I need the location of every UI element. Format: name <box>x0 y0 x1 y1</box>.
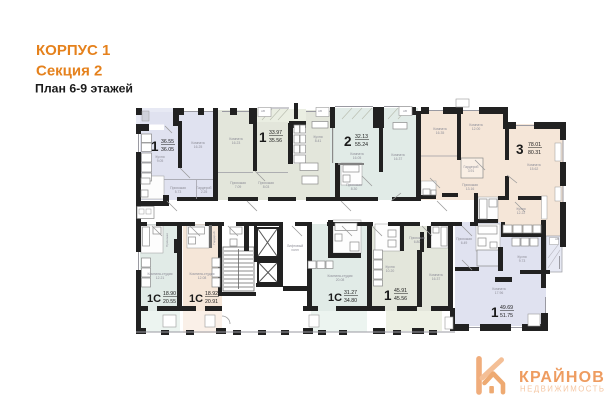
svg-text:КРАЙНОВ: КРАЙНОВ <box>519 367 605 386</box>
svg-text:45.91: 45.91 <box>394 288 407 294</box>
svg-text:78.01: 78.01 <box>528 142 541 148</box>
svg-text:НЕДВИЖИМОСТЬ: НЕДВИЖИМОСТЬ <box>520 385 605 394</box>
svg-text:3: 3 <box>516 142 524 157</box>
svg-text:34.80: 34.80 <box>344 298 357 304</box>
svg-text:36.05: 36.05 <box>161 147 174 153</box>
svg-text:16.23: 16.23 <box>232 141 241 145</box>
svg-text:2.25: 2.25 <box>201 190 208 194</box>
svg-text:16.05: 16.05 <box>353 156 362 160</box>
svg-text:12.00: 12.00 <box>472 127 481 131</box>
svg-text:80.31: 80.31 <box>528 150 541 156</box>
svg-text:Прихожая: Прихожая <box>165 233 169 247</box>
svg-text:33.97: 33.97 <box>269 130 282 136</box>
svg-text:Секция 2: Секция 2 <box>36 63 102 80</box>
svg-text:1С: 1С <box>147 293 161 305</box>
svg-text:20.08: 20.08 <box>336 278 345 282</box>
svg-text:АВ: АВ <box>318 109 322 113</box>
svg-text:9.05: 9.05 <box>157 159 164 163</box>
svg-text:АВ: АВ <box>555 237 559 241</box>
svg-text:1: 1 <box>491 305 499 320</box>
svg-text:12.21: 12.21 <box>156 276 165 280</box>
svg-text:16.35: 16.35 <box>436 131 445 135</box>
svg-text:16.37: 16.37 <box>432 277 441 281</box>
svg-text:36.55: 36.55 <box>161 139 174 145</box>
svg-text:51.75: 51.75 <box>500 313 513 319</box>
svg-text:17.96: 17.96 <box>495 291 504 295</box>
svg-text:Гардероб: Гардероб <box>212 231 216 244</box>
svg-text:1С: 1С <box>189 293 203 305</box>
svg-text:АВ: АВ <box>403 109 407 113</box>
svg-text:6.80: 6.80 <box>414 240 421 244</box>
svg-text:45.56: 45.56 <box>394 296 407 302</box>
svg-text:55.24: 55.24 <box>355 142 368 148</box>
svg-text:8.41: 8.41 <box>315 139 322 143</box>
svg-text:20.55: 20.55 <box>163 299 176 305</box>
svg-text:13.16: 13.16 <box>466 187 475 191</box>
svg-text:5.73: 5.73 <box>175 190 182 194</box>
svg-text:12.08: 12.08 <box>198 276 207 280</box>
svg-text:1: 1 <box>151 139 159 154</box>
svg-text:8.03: 8.03 <box>263 185 270 189</box>
svg-text:16.37: 16.37 <box>394 157 403 161</box>
svg-text:9.73: 9.73 <box>519 259 526 263</box>
svg-text:2: 2 <box>344 134 352 149</box>
svg-text:32.13: 32.13 <box>355 134 368 140</box>
svg-text:20.91: 20.91 <box>205 299 218 305</box>
svg-text:КОРПУС 1: КОРПУС 1 <box>36 42 110 59</box>
svg-text:31.27: 31.27 <box>344 290 357 296</box>
svg-text:6.49: 6.49 <box>461 241 468 245</box>
svg-text:49.69: 49.69 <box>500 305 513 311</box>
svg-text:АВ: АВ <box>261 109 265 113</box>
svg-text:18.90: 18.90 <box>163 291 176 297</box>
svg-text:7.09: 7.09 <box>235 185 242 189</box>
svg-text:10.20: 10.20 <box>386 269 395 273</box>
svg-text:1: 1 <box>259 130 267 145</box>
svg-text:3.91: 3.91 <box>468 169 475 173</box>
svg-text:холл: холл <box>291 248 298 252</box>
svg-text:18.92: 18.92 <box>205 291 218 297</box>
svg-text:15.62: 15.62 <box>530 167 539 171</box>
svg-text:12.22: 12.22 <box>517 211 526 215</box>
svg-text:1С: 1С <box>328 292 342 304</box>
svg-text:1: 1 <box>384 288 392 303</box>
svg-text:16.25: 16.25 <box>194 145 203 149</box>
svg-text:8.30: 8.30 <box>351 187 358 191</box>
svg-text:План 6-9 этажей: План 6-9 этажей <box>35 82 133 96</box>
svg-text:35.56: 35.56 <box>269 138 282 144</box>
